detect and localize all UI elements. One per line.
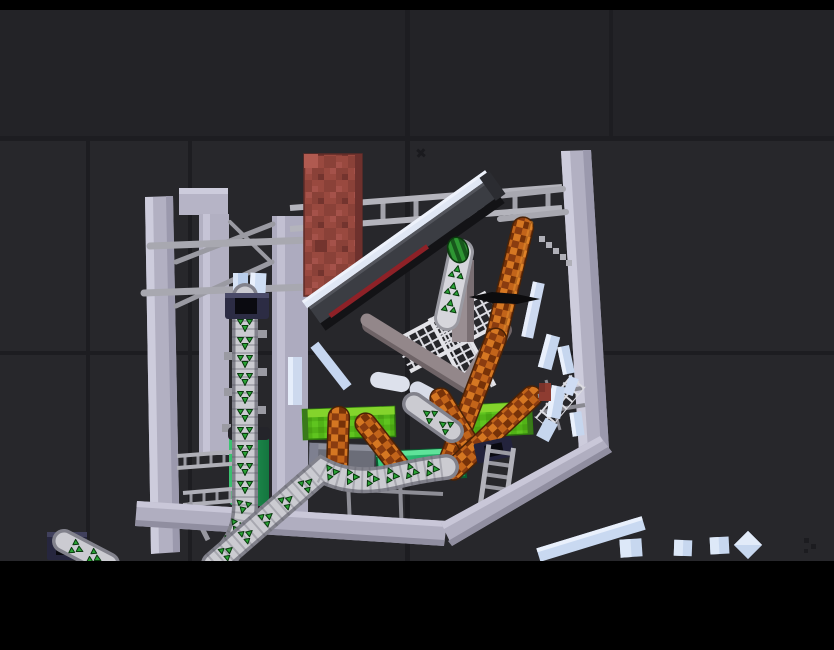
letterbox-top bbox=[0, 0, 834, 10]
brick-fragment[interactable] bbox=[539, 383, 551, 401]
glass-sliver-mid[interactable] bbox=[288, 357, 302, 405]
letterbox-bottom bbox=[0, 561, 834, 650]
header-block[interactable] bbox=[179, 188, 228, 215]
conveyor-socket-upper[interactable] bbox=[225, 293, 269, 319]
game-viewport bbox=[0, 0, 834, 650]
playfield-upper-band bbox=[0, 10, 834, 136]
